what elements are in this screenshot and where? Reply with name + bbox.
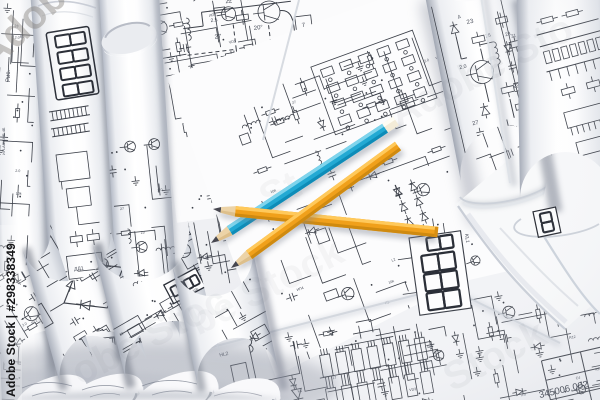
- svg-text:Adobe Stock | #298338349: Adobe Stock | #298338349: [4, 243, 18, 397]
